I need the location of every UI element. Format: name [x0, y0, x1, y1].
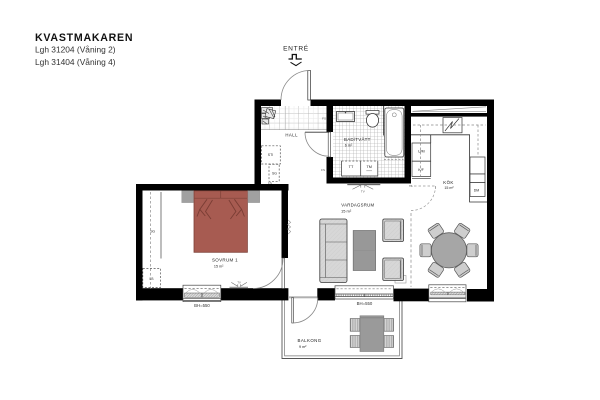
svg-text:15 m²: 15 m²	[341, 209, 352, 214]
svg-text:HALL: HALL	[285, 132, 298, 137]
svg-text:BH=550: BH=550	[357, 301, 373, 306]
svg-text:SG: SG	[150, 229, 155, 233]
svg-text:TT: TT	[349, 165, 354, 169]
svg-text:TS: TS	[409, 184, 413, 188]
svg-text:BALKONG: BALKONG	[298, 338, 322, 343]
svg-text:SG: SG	[272, 171, 277, 175]
svg-text:K/F: K/F	[418, 168, 424, 172]
svg-text:FS: FS	[268, 181, 272, 185]
svg-text:6 m²: 6 m²	[345, 143, 353, 147]
svg-text:KÖK: KÖK	[443, 180, 453, 185]
svg-text:Lgh 31204 (Våning 2): Lgh 31204 (Våning 2)	[35, 45, 116, 55]
svg-text:15 m²: 15 m²	[214, 264, 224, 268]
svg-text:ENTRÉ: ENTRÉ	[283, 43, 309, 52]
svg-text:VARDAGSRUM: VARDAGSRUM	[341, 202, 374, 207]
svg-text:BAD/TVÄTT: BAD/TVÄTT	[344, 136, 371, 142]
svg-text:BH=550: BH=550	[194, 303, 210, 308]
svg-text:FS: FS	[321, 168, 325, 172]
svg-text:Lgh 31404 (Våning 4): Lgh 31404 (Våning 4)	[35, 57, 116, 67]
svg-text:SOVRUM 1: SOVRUM 1	[212, 258, 238, 263]
svg-text:LB: LB	[150, 277, 154, 281]
svg-text:9 m²: 9 m²	[299, 345, 307, 349]
svg-text:U/M: U/M	[418, 149, 425, 153]
svg-text:DM: DM	[474, 188, 480, 192]
svg-text:TM: TM	[366, 165, 371, 169]
svg-text:TV: TV	[361, 190, 365, 194]
svg-text:15 m²: 15 m²	[444, 186, 454, 190]
svg-text:FS: FS	[322, 117, 326, 121]
svg-text:TV: TV	[237, 281, 241, 285]
svg-text:STI: STI	[268, 153, 273, 157]
svg-text:KVASTMAKAREN: KVASTMAKAREN	[35, 32, 133, 44]
